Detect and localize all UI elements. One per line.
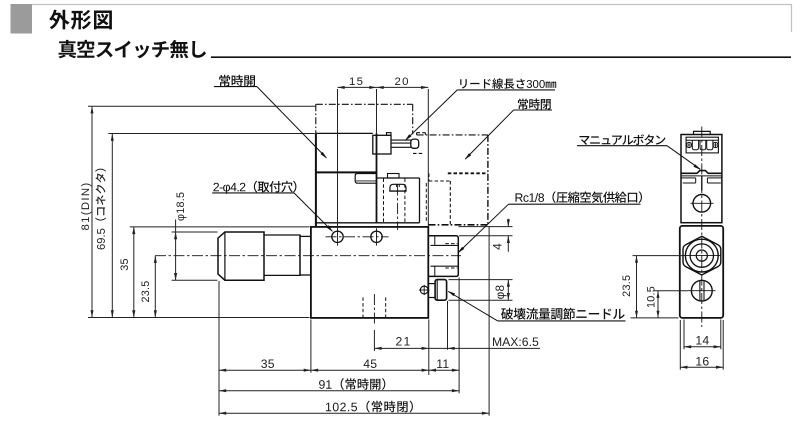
- svg-text:20: 20: [395, 76, 410, 88]
- svg-text:81(DIN): 81(DIN): [80, 182, 92, 231]
- svg-text:MAX:6.5: MAX:6.5: [492, 335, 539, 349]
- svg-text:35: 35: [119, 258, 131, 271]
- svg-text:φ18.5: φ18.5: [175, 192, 187, 221]
- svg-text:21: 21: [396, 334, 412, 348]
- svg-text:23.5: 23.5: [140, 280, 152, 302]
- svg-text:16: 16: [695, 354, 709, 368]
- svg-text:15: 15: [349, 76, 364, 88]
- svg-text:14: 14: [695, 334, 709, 348]
- svg-text:10.5: 10.5: [646, 286, 658, 308]
- svg-text:23.5: 23.5: [621, 275, 633, 297]
- svg-text:4: 4: [490, 243, 504, 250]
- svg-text:45: 45: [363, 357, 377, 371]
- svg-text:φ8: φ8: [493, 284, 507, 299]
- svg-text:11: 11: [436, 357, 449, 371]
- svg-text:35: 35: [261, 357, 275, 371]
